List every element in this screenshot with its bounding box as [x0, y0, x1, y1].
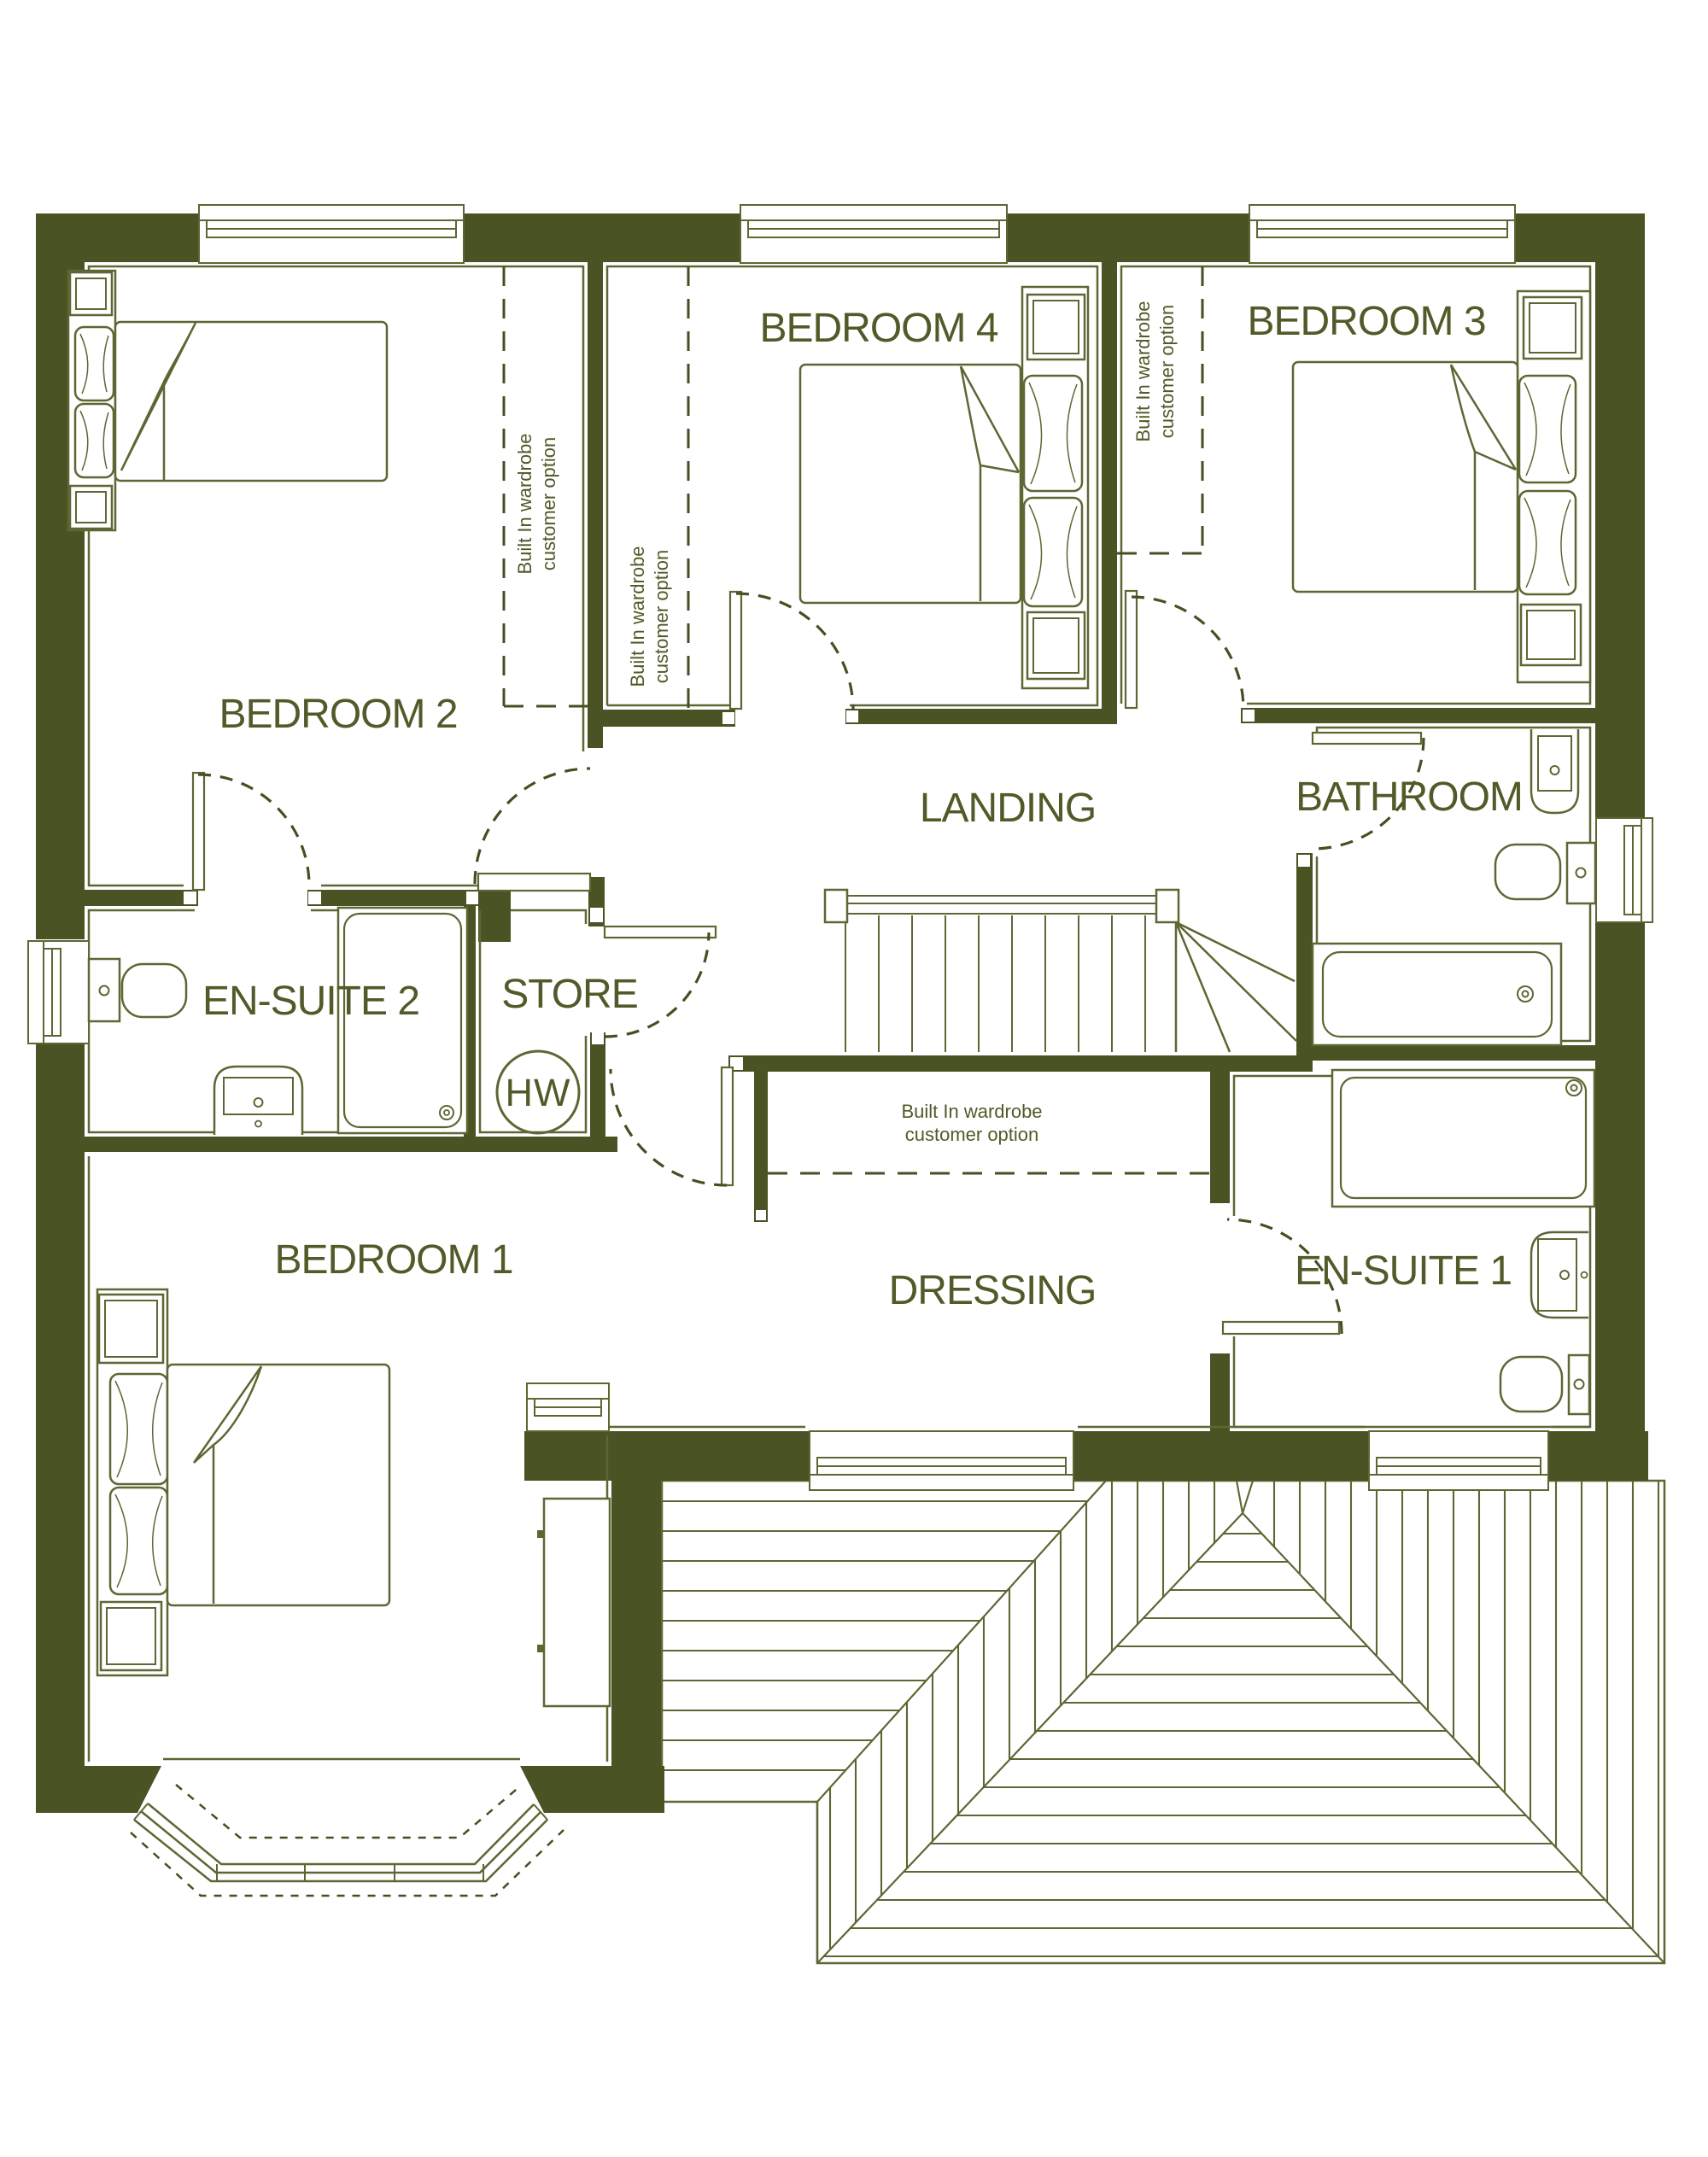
svg-text:BEDROOM 1: BEDROOM 1 [274, 1237, 512, 1283]
svg-text:BATHROOM: BATHROOM [1296, 775, 1523, 820]
svg-text:LANDING: LANDING [920, 786, 1096, 831]
svg-text:BEDROOM 4: BEDROOM 4 [759, 306, 997, 351]
svg-text:Built In wardrobe: Built In wardrobe [514, 433, 535, 574]
svg-text:customer option: customer option [651, 550, 672, 684]
svg-text:Built In wardrobe: Built In wardrobe [627, 546, 648, 687]
svg-text:BEDROOM 2: BEDROOM 2 [219, 692, 457, 737]
svg-text:customer option: customer option [905, 1124, 1039, 1145]
svg-text:Built In wardrobe: Built In wardrobe [901, 1101, 1042, 1122]
svg-text:HW: HW [506, 1071, 571, 1114]
svg-text:EN-SUITE 2: EN-SUITE 2 [202, 979, 419, 1024]
svg-text:STORE: STORE [501, 972, 637, 1017]
svg-text:customer option: customer option [538, 437, 559, 571]
svg-text:EN-SUITE 1: EN-SUITE 1 [1295, 1248, 1512, 1294]
svg-text:Built In wardrobe: Built In wardrobe [1132, 301, 1154, 441]
svg-text:customer option: customer option [1156, 305, 1178, 439]
svg-text:BEDROOM 3: BEDROOM 3 [1247, 299, 1485, 344]
svg-text:DRESSING: DRESSING [889, 1268, 1097, 1313]
